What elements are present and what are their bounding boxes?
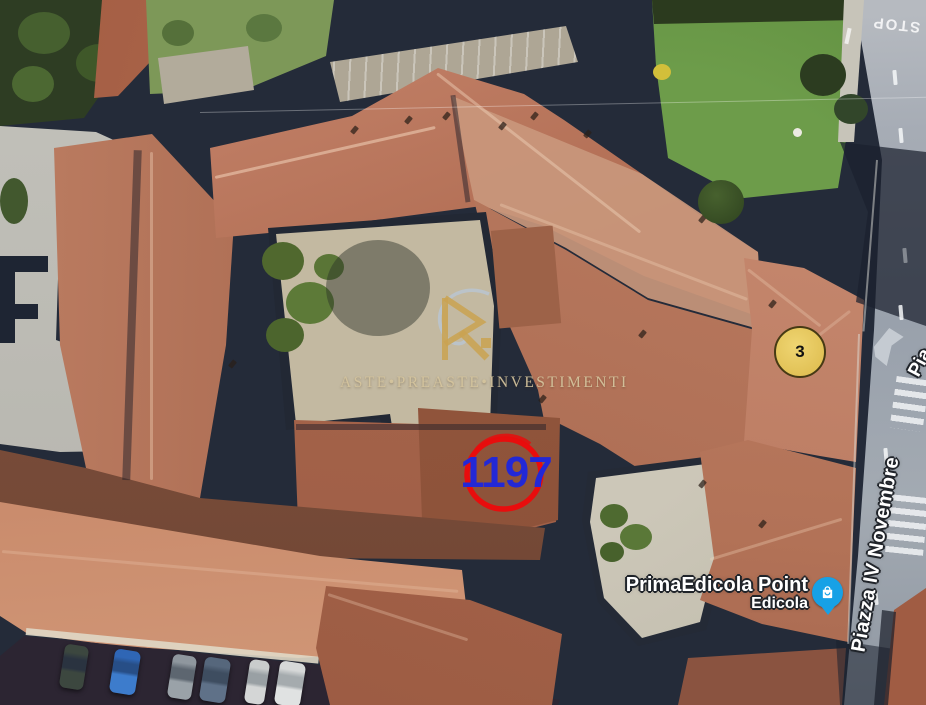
poi-category: Edicola bbox=[596, 596, 808, 613]
bush bbox=[162, 20, 194, 46]
satellite-map[interactable]: ASTE•PREASTE•INVESTIMENTI 1197 3 PrimaEd… bbox=[0, 0, 926, 705]
poi-name: PrimaEdicola Point bbox=[596, 575, 808, 596]
poi-pin[interactable] bbox=[812, 577, 843, 608]
terrace-bush bbox=[600, 542, 624, 562]
shopping-bag-icon bbox=[820, 585, 835, 600]
rooftop-small bbox=[491, 225, 561, 328]
crosswalk bbox=[890, 376, 926, 432]
umbrella bbox=[653, 64, 671, 80]
roof-valley bbox=[296, 424, 546, 430]
round-tree bbox=[698, 180, 744, 224]
chimney bbox=[583, 129, 592, 138]
bush bbox=[246, 14, 282, 42]
poi-pin-tail bbox=[821, 606, 835, 615]
parcel-number: 1197 bbox=[448, 451, 564, 495]
tree-blob bbox=[18, 12, 70, 54]
white-dot bbox=[793, 128, 802, 137]
tree-blob bbox=[800, 54, 846, 96]
building-shadow bbox=[0, 258, 15, 343]
tree-shadow bbox=[326, 240, 430, 336]
marker-label: 3 bbox=[795, 342, 804, 362]
terrace-bush bbox=[620, 524, 652, 550]
chimney bbox=[228, 359, 237, 368]
tree-blob bbox=[0, 178, 28, 224]
courtyard-tree bbox=[262, 242, 304, 280]
terrace-bush bbox=[600, 504, 628, 528]
numbered-marker[interactable]: 3 bbox=[774, 326, 826, 378]
building-shadow bbox=[0, 304, 38, 319]
courtyard-tree bbox=[266, 318, 304, 352]
tree-blob bbox=[12, 66, 54, 102]
poi-label[interactable]: PrimaEdicola Point Edicola bbox=[596, 575, 808, 613]
roof-ridge bbox=[150, 152, 153, 480]
